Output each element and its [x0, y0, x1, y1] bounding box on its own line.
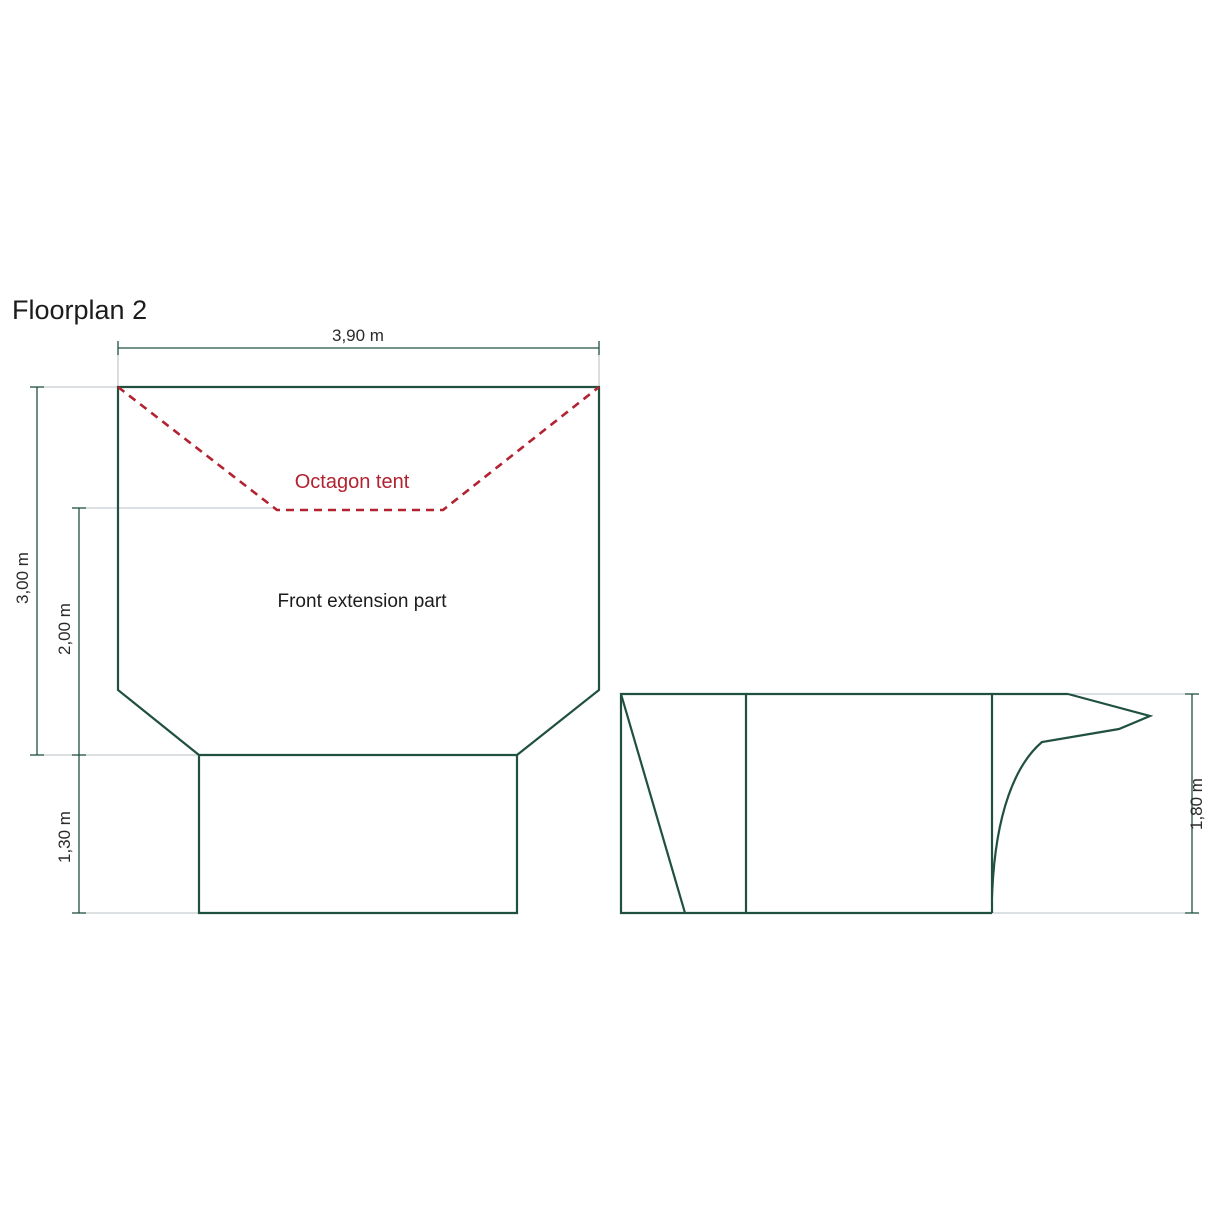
plan-porch-outline	[199, 755, 517, 913]
plan-labels: 3,90 m 3,00 m 2,00 m 1,30 m Octagon tent…	[13, 326, 447, 863]
side-inner-diagonal	[621, 694, 685, 913]
side-extension-lines	[992, 694, 1192, 913]
front-depth-dimension-label: 2,00 m	[55, 603, 74, 655]
octagon-tent-label: Octagon tent	[295, 471, 410, 493]
side-outlines	[621, 694, 1150, 913]
floorplan-drawing: 3,90 m 3,00 m 2,00 m 1,30 m Octagon tent…	[0, 0, 1214, 1214]
plan-dimension-lines	[30, 341, 599, 913]
plan-outlines	[118, 387, 599, 913]
floorplan-page: 3,90 m 3,00 m 2,00 m 1,30 m Octagon tent…	[0, 0, 1214, 1214]
height-dimension	[30, 387, 44, 755]
width-dimension-label: 3,90 m	[332, 326, 384, 345]
side-view: 1,80 m	[621, 694, 1206, 913]
front-depth-dimension	[72, 508, 86, 913]
side-labels: 1,80 m	[1187, 778, 1206, 830]
front-extension-label: Front extension part	[278, 591, 448, 612]
side-height-dimension-label: 1,80 m	[1187, 778, 1206, 830]
page-title: Floorplan 2	[12, 295, 147, 325]
porch-depth-dimension-label: 1,30 m	[55, 811, 74, 863]
plan-extension-lines	[37, 351, 599, 913]
plan-view: 3,90 m 3,00 m 2,00 m 1,30 m Octagon tent…	[13, 326, 599, 913]
height-dimension-label: 3,00 m	[13, 552, 32, 604]
side-canopy-beak	[992, 694, 1150, 897]
side-body-outline	[621, 694, 1068, 913]
